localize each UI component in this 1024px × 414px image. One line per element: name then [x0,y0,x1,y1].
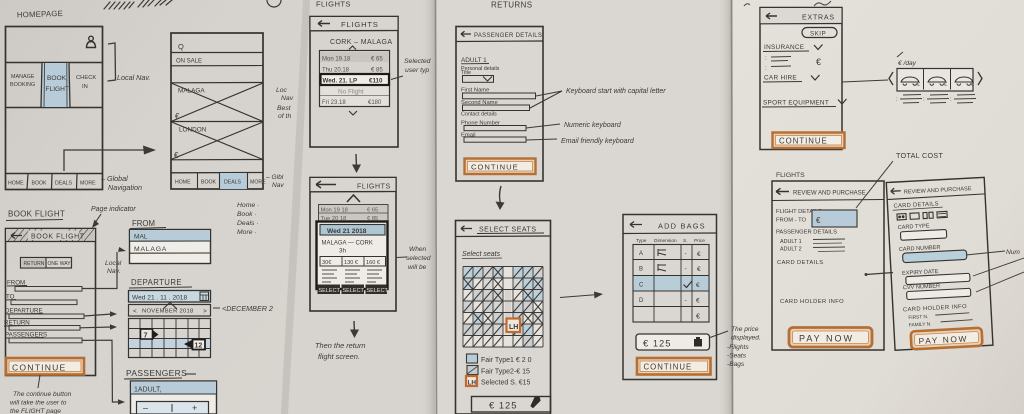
svg-text:MORE: MORE [250,180,266,186]
svg-text:SELECT: SELECT [319,288,341,294]
svg-text:Email friendly keyboard: Email friendly keyboard [561,138,635,145]
svg-text:C: C [639,283,644,289]
svg-text:EXTRAS: EXTRAS [802,15,835,22]
svg-text:SPORT EQUIPMENT: SPORT EQUIPMENT [763,100,829,107]
svg-text:30€: 30€ [322,260,332,266]
svg-text:Best: Best [277,105,292,112]
svg-text:ADD BAGS: ADD BAGS [658,222,706,231]
svg-text:€ 125: € 125 [643,338,671,349]
svg-text:PASSENGER DETAILS: PASSENGER DETAILS [776,230,837,236]
svg-text:Fair Type2-€ 15: Fair Type2-€ 15 [481,369,530,376]
svg-text:Price: Price [694,238,705,244]
svg-text:CARD DETAILS: CARD DETAILS [777,260,824,266]
svg-text:Page indicator: Page indicator [91,206,136,213]
svg-text:<DECEMBER 2: <DECEMBER 2 [222,304,273,313]
svg-text:Nav.: Nav. [107,268,121,275]
svg-text:NOVEMBER 2018: NOVEMBER 2018 [142,309,194,315]
svg-text:PAY NOW: PAY NOW [799,334,854,344]
svg-text:DEALS: DEALS [224,180,242,186]
svg-text:Num: Num [1006,249,1020,256]
svg-text:BOOK: BOOK [47,75,67,82]
svg-text:MANAGE: MANAGE [11,74,35,80]
svg-text:flight screen.: flight screen. [318,352,360,361]
svg-text:LH: LH [468,380,477,387]
svg-text:PASSENGERS: PASSENGERS [126,368,187,378]
svg-text:S.: S. [683,238,688,244]
svg-text:-Bags: -Bags [727,361,745,368]
svg-text:displayed.: displayed. [731,335,761,342]
svg-text:Q: Q [178,42,184,51]
svg-text:DEPARTURE: DEPARTURE [131,278,182,287]
svg-text:BOOK: BOOK [201,180,217,186]
svg-text:€: € [696,298,700,305]
svg-text:selected: selected [406,255,431,262]
svg-text:B: B [639,267,643,273]
svg-text:CONTINUE: CONTINUE [471,163,519,172]
svg-text:FAMILY N.: FAMILY N. [909,321,932,328]
svg-text:When: When [409,246,427,253]
svg-text:–: – [143,403,148,413]
svg-text:Numeric keyboard: Numeric keyboard [564,122,622,129]
svg-text:will be: will be [408,264,427,271]
svg-text:BOOK FLIGHT: BOOK FLIGHT [8,210,65,219]
svg-text:€110: €110 [369,78,383,85]
svg-text:Wed. 21. LP: Wed. 21. LP [323,78,358,85]
svg-text:€: € [816,57,821,67]
svg-text:More ·: More · [237,229,257,236]
svg-text:ADULT 1: ADULT 1 [780,239,802,245]
svg-text:BOOK FLIGHT: BOOK FLIGHT [31,234,85,241]
svg-text:will take the user to: will take the user to [10,400,67,407]
svg-text:<: < [133,308,137,315]
svg-text:CHECK: CHECK [76,75,96,81]
svg-text:HOME: HOME [175,180,191,186]
svg-text:€ 85: € 85 [371,68,383,74]
svg-text:-Flights: -Flights [727,344,749,351]
svg-text:>: > [203,308,207,315]
svg-text:Loc: Loc [276,87,288,94]
svg-text:CONTINUE: CONTINUE [779,137,828,146]
svg-text:The continue button: The continue button [13,391,72,398]
svg-text:user typ: user typ [405,67,429,74]
svg-text:ADULT 2: ADULT 2 [780,247,802,253]
svg-text:€ 65: € 65 [371,57,383,63]
svg-text:SELECT: SELECT [343,288,365,294]
svg-text:€: € [944,82,947,88]
svg-text:HOME: HOME [8,181,24,187]
svg-text:REVIEW AND PURCHASE: REVIEW AND PURCHASE [793,191,866,197]
svg-text:€ 125: € 125 [489,400,517,411]
svg-text:€ 65: € 65 [367,208,378,214]
svg-text:Local: Local [105,260,122,267]
svg-text:No Flight: No Flight [338,89,364,96]
svg-text:PASSENGER DETAILS: PASSENGER DETAILS [474,33,542,39]
svg-text:The price: The price [731,326,759,333]
svg-text:Email: Email [461,133,476,139]
svg-text:TOTAL COST: TOTAL COST [896,151,944,160]
svg-text:SELECT SEATS: SELECT SEATS [479,227,536,234]
svg-text:Fair Type1 € 2 0: Fair Type1 € 2 0 [481,357,532,364]
svg-text:FROM - TO: FROM - TO [776,218,807,224]
svg-text:RETURNS: RETURNS [491,1,532,10]
svg-text:Dimension: Dimension [654,238,677,244]
svg-text:+: + [192,403,197,413]
svg-text:– Glbl: – Glbl [265,174,284,181]
svg-text:-: - [685,251,687,258]
svg-text:Thu 20.18: Thu 20.18 [322,68,350,74]
svg-text:CONTINUE: CONTINUE [644,363,693,372]
svg-text:MORE: MORE [80,181,96,187]
svg-text:CARD HOLDER INFO: CARD HOLDER INFO [780,299,844,305]
svg-text:-: - [685,297,687,304]
svg-text:-: - [685,266,687,273]
svg-text:Navigation: Navigation [108,183,142,192]
svg-text:MALAGA — CORK: MALAGA — CORK [322,241,373,247]
svg-text:€: € [697,266,701,273]
svg-text:€: € [696,282,700,289]
svg-text:of th: of th [278,113,291,120]
svg-text:Home ·: Home · [237,202,259,209]
svg-text:ON SALE: ON SALE [176,59,202,65]
svg-text:Selected: Selected [404,58,431,65]
svg-text:– Global: – Global [100,174,128,183]
svg-text:CORK – MALAGA: CORK – MALAGA [330,39,392,46]
svg-text:BOOK: BOOK [32,181,48,187]
svg-text:160 €: 160 € [366,260,381,266]
svg-text:HOMEPAGE: HOMEPAGE [17,9,63,20]
svg-text:LONDON: LONDON [179,127,207,134]
svg-text:€: € [971,82,974,88]
svg-text:FLIGHTS: FLIGHTS [341,20,379,29]
svg-text:FLIGHTS: FLIGHTS [776,172,805,179]
svg-text:FIRST N.: FIRST N. [908,314,928,321]
svg-text:Wed 21 . 11 . 2018: Wed 21 . 11 . 2018 [132,295,187,302]
svg-text:D: D [639,298,644,304]
svg-text:MALAGA: MALAGA [134,246,167,253]
svg-text:SKIP: SKIP [810,31,826,38]
svg-text:Local Nav.: Local Nav. [117,73,150,82]
svg-text:A: A [639,251,643,257]
svg-text:-Seats: -Seats [727,353,747,360]
svg-text:MALAGA: MALAGA [178,88,205,95]
svg-text:Keyboard start with capital le: Keyboard start with capital letter [566,88,666,95]
svg-text:€: € [697,251,701,258]
svg-text:FLIGHTS: FLIGHTS [316,0,351,9]
svg-text:3h: 3h [339,248,346,255]
svg-text:FROM: FROM [132,219,155,228]
svg-text:FLIGHT: FLIGHT [46,86,69,93]
svg-text:€: € [816,216,821,225]
svg-text:Type: Type [636,238,647,244]
svg-text:CAR HIRE: CAR HIRE [764,75,797,82]
svg-text:Nav: Nav [281,95,294,102]
svg-text:12: 12 [195,343,203,350]
svg-text:€: € [174,151,179,160]
svg-text:€: € [917,82,920,88]
svg-text:130 €: 130 € [344,260,359,266]
svg-text:Mon 19 18: Mon 19 18 [321,208,348,214]
svg-text:ADULT 1: ADULT 1 [461,57,487,64]
svg-text:Select seats: Select seats [462,251,501,258]
svg-text:Deals ·: Deals · [237,220,259,227]
svg-text:LH: LH [509,324,518,331]
svg-text:Mon 19.18: Mon 19.18 [322,57,351,63]
svg-text:Fri 23.18: Fri 23.18 [322,100,346,106]
svg-text:CONTINUE: CONTINUE [12,363,66,373]
svg-text:Wed 21 2018: Wed 21 2018 [327,228,367,235]
svg-text:INSURANCE: INSURANCE [764,44,804,51]
svg-text:Book ·: Book · [237,211,257,218]
svg-text:SELECT: SELECT [367,288,389,294]
svg-text:€ /day: € /day [898,60,917,67]
svg-text:1ADULT,: 1ADULT, [134,387,162,394]
svg-text:the FLIGHT page: the FLIGHT page [10,408,61,414]
svg-text:€: € [696,312,700,321]
svg-text:€: € [175,112,180,121]
svg-text:DEALS: DEALS [55,181,73,187]
svg-text:ONE WAY: ONE WAY [48,261,72,267]
svg-text:7: 7 [144,331,148,340]
svg-text:RETURN: RETURN [24,261,45,267]
svg-text:Contact details: Contact details [461,112,497,118]
svg-text:€180: €180 [368,100,382,106]
svg-text:Selected S. €15: Selected S. €15 [481,380,531,387]
svg-text:Then the return: Then the return [315,341,366,350]
svg-text:BOOKING: BOOKING [10,82,35,88]
svg-text:FLIGHTS: FLIGHTS [357,184,391,191]
svg-text:Nav: Nav [272,182,284,189]
svg-text:MAL: MAL [134,234,148,241]
svg-text:IN: IN [82,84,88,90]
